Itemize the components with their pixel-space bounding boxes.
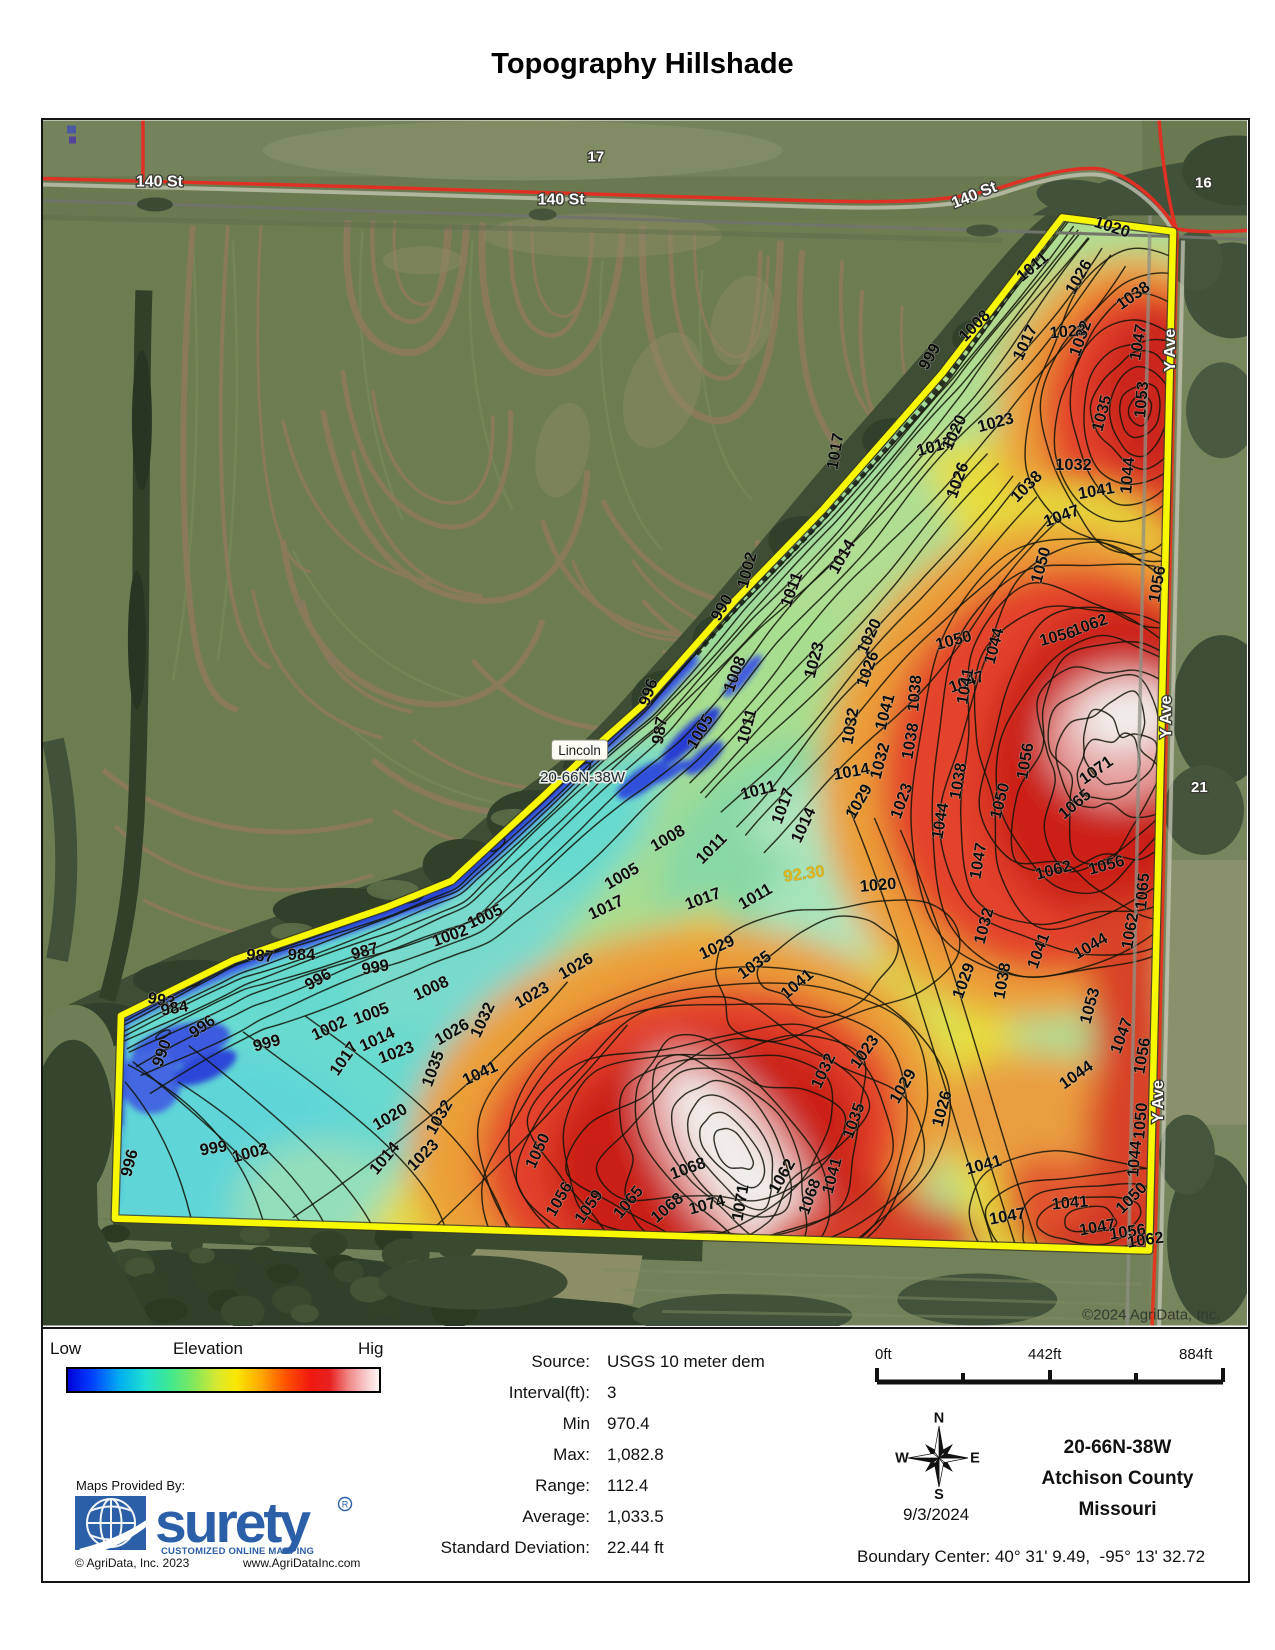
svg-text:987: 987	[245, 946, 274, 966]
svg-text:140 St: 140 St	[136, 173, 184, 190]
svg-text:W: W	[895, 1451, 909, 1467]
svg-text:©2024 AgriData, Inc.: ©2024 AgriData, Inc.	[1082, 1307, 1220, 1324]
svg-text:140 St: 140 St	[538, 191, 586, 208]
svg-text:1044: 1044	[1124, 1139, 1145, 1178]
svg-text:1044: 1044	[1117, 456, 1138, 495]
svg-text:Y Ave: Y Ave	[1150, 1080, 1167, 1123]
svg-text:1053: 1053	[1131, 381, 1152, 419]
svg-text:E: E	[970, 1451, 980, 1467]
svg-text:1041: 1041	[1051, 1192, 1089, 1213]
svg-text:1032: 1032	[1055, 456, 1092, 474]
svg-text:16: 16	[1195, 174, 1212, 191]
svg-text:21: 21	[1191, 779, 1208, 796]
svg-text:Y Ave: Y Ave	[1158, 695, 1175, 738]
svg-text:1050: 1050	[1130, 1102, 1151, 1140]
svg-text:S: S	[934, 1487, 944, 1503]
svg-text:984: 984	[288, 946, 316, 964]
svg-text:20-66N-38W: 20-66N-38W	[540, 769, 626, 786]
svg-text:Lincoln: Lincoln	[558, 743, 601, 758]
svg-text:1020: 1020	[859, 875, 897, 896]
svg-text:R: R	[342, 1500, 349, 1510]
svg-text:1065: 1065	[1132, 872, 1153, 910]
svg-text:1038: 1038	[904, 674, 925, 712]
svg-text:Y Ave: Y Ave	[1162, 329, 1179, 372]
svg-text:N: N	[934, 1411, 944, 1427]
svg-text:17: 17	[588, 148, 605, 165]
